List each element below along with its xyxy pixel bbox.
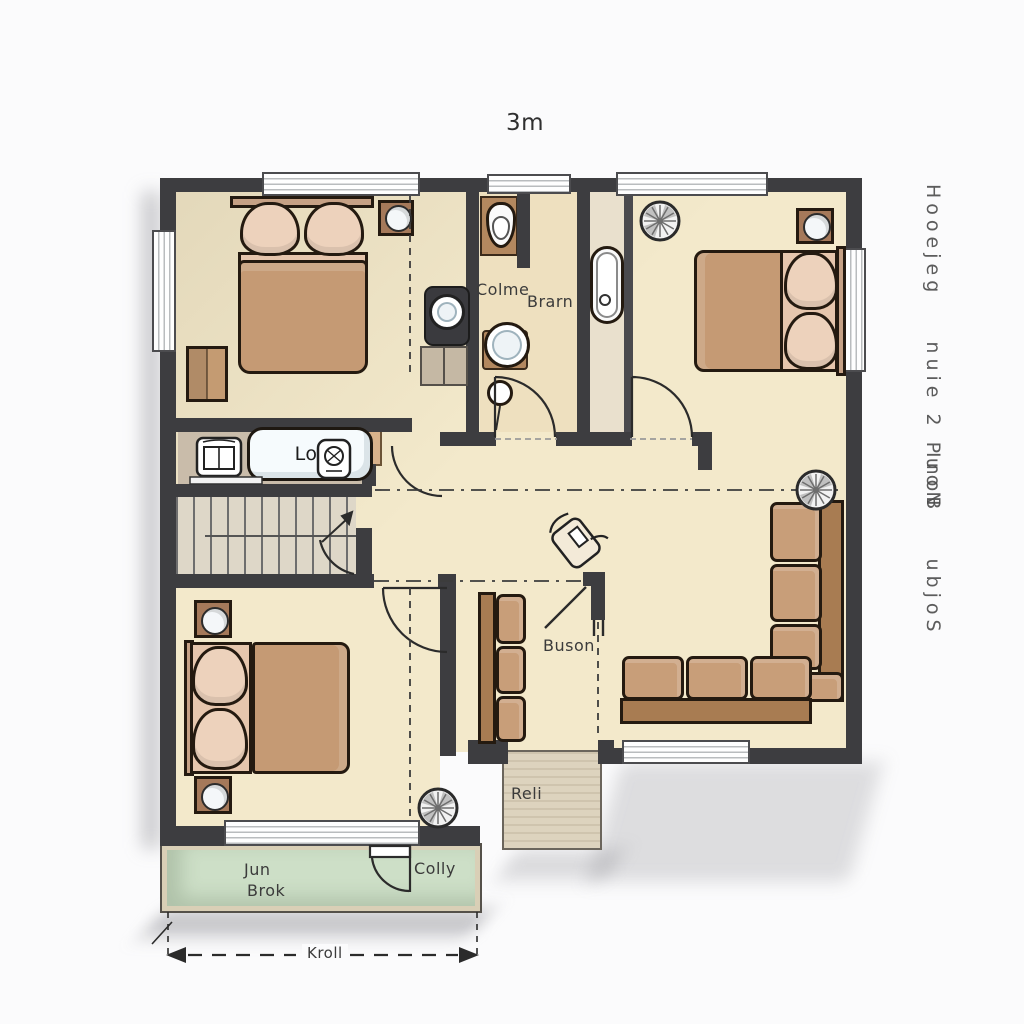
reference-lines <box>374 196 843 818</box>
balcony-label-line1: Jun <box>244 860 271 879</box>
entry-label: Reli <box>511 784 542 803</box>
dimension-label: Kroll <box>302 944 348 962</box>
balcony-right-label: Colly <box>414 859 456 878</box>
bathroom2-label: Brarn <box>527 292 573 311</box>
plan-linework <box>0 0 1024 1024</box>
balcony-label-line2: Brok <box>247 881 285 900</box>
bidet-stem <box>496 406 500 430</box>
kettle-icon <box>544 502 611 570</box>
door-swings <box>320 377 692 891</box>
stair-arrow <box>322 512 352 542</box>
side-note-2: InoB ubjoS <box>922 452 944 582</box>
buson-detail <box>545 587 603 636</box>
living-label: Buson <box>543 636 595 655</box>
side-note-1: Hooejeg nuie 2 PuoN <box>922 184 944 444</box>
bathroom-label: Colme <box>476 280 529 299</box>
small-appliance-icon <box>318 440 350 478</box>
floor-plan-page: { "drawing_type": "floor_plan", "annotat… <box>0 0 1024 1024</box>
stove-icon <box>190 438 262 484</box>
scale-label: 3m <box>506 110 544 136</box>
